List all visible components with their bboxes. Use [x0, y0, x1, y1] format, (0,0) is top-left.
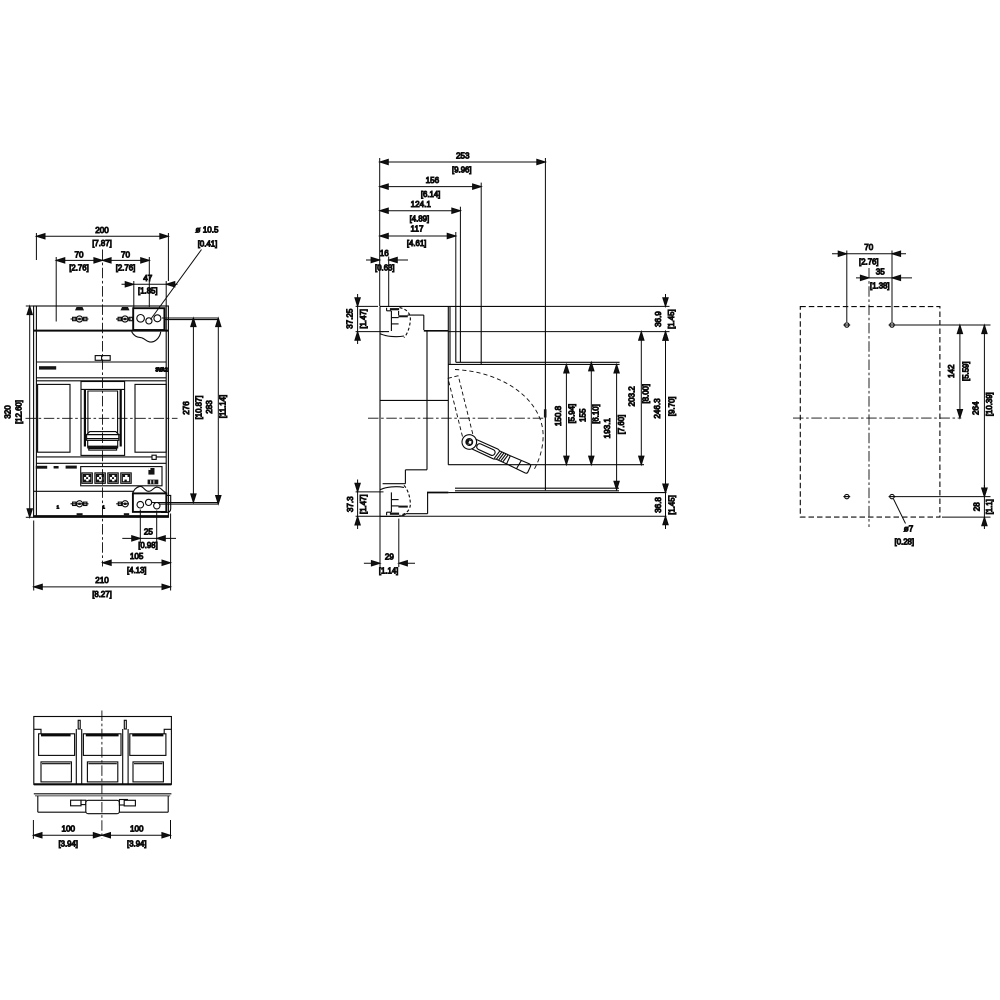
svg-text:117: 117 [411, 225, 424, 234]
svg-text:[12.60]: [12.60] [15, 400, 24, 424]
svg-text:[1.45]: [1.45] [667, 309, 676, 329]
svg-text:[11.14]: [11.14] [218, 395, 227, 418]
svg-text:37.3: 37.3 [346, 496, 355, 512]
svg-text:[1.38]: [1.38] [870, 282, 890, 291]
svg-text:[0.41]: [0.41] [198, 240, 218, 249]
svg-text:70: 70 [864, 243, 874, 252]
svg-text:[1.14]: [1.14] [379, 567, 399, 576]
svg-text:[2.76]: [2.76] [859, 257, 879, 266]
svg-text:320: 320 [4, 405, 13, 419]
svg-text:[3.94]: [3.94] [127, 840, 147, 849]
svg-text:200: 200 [95, 226, 109, 235]
svg-text:29: 29 [385, 552, 395, 561]
svg-text:70: 70 [121, 250, 131, 259]
svg-text:[10.87]: [10.87] [195, 396, 204, 420]
svg-text:[1.1]: [1.1] [985, 499, 994, 514]
svg-text:124.1: 124.1 [411, 200, 432, 209]
svg-text:[8.27]: [8.27] [92, 590, 112, 599]
svg-text:[1.47]: [1.47] [359, 494, 368, 514]
svg-text:28: 28 [972, 502, 981, 512]
svg-text:[1.45]: [1.45] [667, 495, 676, 515]
svg-text:47: 47 [143, 274, 153, 283]
svg-text:193.1: 193.1 [603, 418, 612, 439]
svg-text:[6.14]: [6.14] [421, 190, 441, 199]
svg-text:16: 16 [380, 249, 390, 258]
svg-text:[3.94]: [3.94] [58, 840, 78, 849]
svg-text:210: 210 [95, 576, 109, 585]
svg-text:35: 35 [876, 267, 886, 276]
svg-text:[5.94]: [5.94] [567, 404, 576, 424]
svg-text:[1.47]: [1.47] [359, 309, 368, 329]
svg-text:150.8: 150.8 [554, 405, 563, 426]
svg-text:156: 156 [426, 176, 440, 185]
svg-text:276: 276 [182, 401, 191, 415]
svg-text:[1.85]: [1.85] [138, 287, 158, 296]
svg-text:[0.98]: [0.98] [138, 541, 158, 550]
svg-text:3VA2: 3VA2 [156, 367, 168, 373]
svg-text:[7.87]: [7.87] [92, 239, 112, 248]
svg-text:105: 105 [130, 552, 144, 561]
svg-text:70: 70 [74, 250, 84, 259]
svg-text:[6.10]: [6.10] [592, 404, 601, 424]
svg-text:253: 253 [456, 151, 470, 160]
svg-text:[4.13]: [4.13] [127, 566, 147, 575]
svg-text:25: 25 [144, 528, 154, 537]
svg-text:100: 100 [61, 825, 75, 834]
svg-text:246.3: 246.3 [653, 398, 662, 419]
svg-text:[4.89]: [4.89] [410, 214, 430, 223]
svg-text:142: 142 [947, 364, 956, 378]
svg-text:[0.28]: [0.28] [895, 538, 915, 547]
svg-text:[10.39]: [10.39] [985, 392, 994, 416]
svg-text:37.25: 37.25 [345, 308, 354, 329]
svg-text:ø7: ø7 [904, 525, 914, 534]
svg-text:[8.00]: [8.00] [641, 384, 650, 404]
svg-text:155: 155 [578, 408, 587, 422]
svg-text:100: 100 [130, 825, 144, 834]
svg-text:[2.76]: [2.76] [116, 263, 136, 272]
svg-text:264: 264 [972, 401, 981, 415]
svg-text:[9.70]: [9.70] [668, 397, 677, 417]
svg-text:[2.76]: [2.76] [69, 263, 89, 272]
svg-text:283: 283 [205, 400, 214, 414]
svg-text:[0.63]: [0.63] [375, 264, 395, 273]
svg-text:36.9: 36.9 [654, 311, 663, 327]
svg-text:[5.59]: [5.59] [961, 361, 970, 381]
svg-text:[7.60]: [7.60] [617, 415, 626, 435]
svg-text:36.8: 36.8 [654, 497, 663, 513]
svg-text:[9.96]: [9.96] [452, 166, 472, 175]
svg-text:203.2: 203.2 [628, 386, 637, 407]
svg-text:[4.61]: [4.61] [407, 239, 427, 248]
svg-text:ø 10.5: ø 10.5 [196, 226, 219, 235]
